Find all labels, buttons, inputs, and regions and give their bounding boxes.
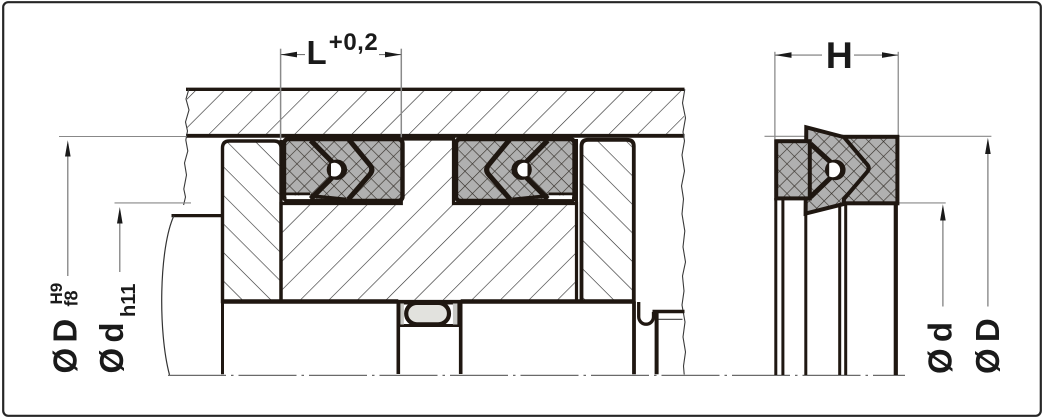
- svg-text:Ø d: Ø d: [922, 322, 959, 374]
- svg-text:h11: h11: [118, 284, 140, 317]
- svg-text:Ø D: Ø D: [47, 319, 84, 374]
- svg-text:Ø D: Ø D: [969, 318, 1006, 374]
- svg-text:H: H: [826, 34, 853, 76]
- svg-text:+0,2: +0,2: [329, 29, 378, 56]
- svg-text:L: L: [307, 34, 327, 71]
- svg-text:f8: f8: [62, 290, 82, 306]
- svg-text:Ø d: Ø d: [93, 323, 130, 374]
